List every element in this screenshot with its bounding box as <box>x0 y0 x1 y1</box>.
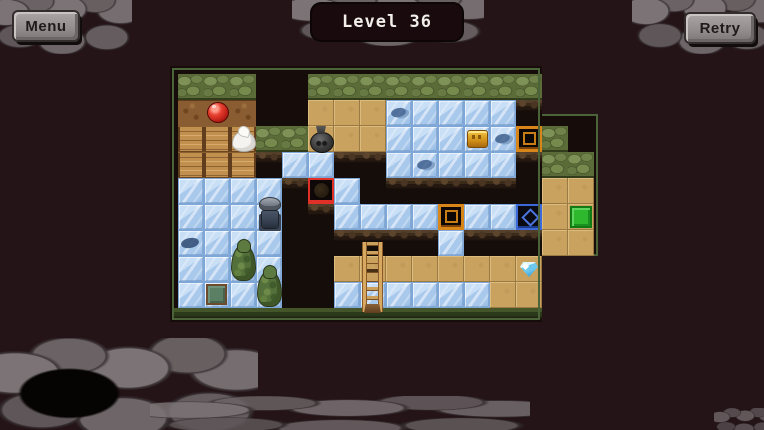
tile-pit <box>282 204 308 230</box>
tile-wood-planks <box>178 152 204 178</box>
tile-grass-wall <box>282 126 308 152</box>
tile-sand-floor <box>568 178 594 204</box>
tile-ice <box>464 100 490 126</box>
tile-ice <box>178 282 204 308</box>
tile-grass-wall <box>360 74 386 100</box>
tile-ice <box>386 204 412 230</box>
tile-pit <box>360 152 386 178</box>
tile-dirt <box>230 100 256 126</box>
tile-pit <box>282 230 308 256</box>
tile-ice <box>178 204 204 230</box>
tile-pit <box>308 282 334 308</box>
tile-ice <box>178 256 204 282</box>
tile-ice <box>412 100 438 126</box>
tile-ice <box>230 178 256 204</box>
tile-ice <box>308 152 334 178</box>
tile-grass-wall <box>542 126 568 152</box>
cave-rocks-bottom-right <box>714 408 764 430</box>
ladder <box>360 230 386 256</box>
tile-pit <box>334 230 360 256</box>
tile-wood-planks <box>230 152 256 178</box>
tile-ice <box>334 178 360 204</box>
tile-ice <box>438 230 464 256</box>
tile-ice <box>412 204 438 230</box>
tile-ice <box>412 126 438 152</box>
tile-ice <box>386 152 412 178</box>
tile-pit <box>282 178 308 204</box>
tile-sand-floor <box>334 256 360 282</box>
tree <box>256 282 282 308</box>
tile-pit <box>308 256 334 282</box>
tile-ice <box>386 282 412 308</box>
tile-grass-wall <box>334 74 360 100</box>
exit-pad <box>568 204 594 230</box>
tile-sand-floor <box>490 256 516 282</box>
tile-grass-wall <box>516 74 542 100</box>
tile-pit <box>334 152 360 178</box>
tile-grass-wall <box>412 74 438 100</box>
tile-ice <box>464 282 490 308</box>
tile-grass-wall <box>256 126 282 152</box>
tile-ice <box>230 282 256 308</box>
tile-pit <box>386 230 412 256</box>
tile-sand-floor <box>308 100 334 126</box>
bomb <box>308 126 334 152</box>
tile-sand-floor <box>360 100 386 126</box>
tile-grass-wall <box>490 74 516 100</box>
menu-button[interactable]: Menu <box>12 10 80 42</box>
tile-wood-planks <box>204 126 230 152</box>
gold-crate <box>464 126 490 152</box>
tile-ice <box>412 282 438 308</box>
tile-grass-wall <box>386 74 412 100</box>
tile-pit <box>308 204 334 230</box>
tile-sand-floor <box>412 256 438 282</box>
tile-grass-wall <box>542 152 568 178</box>
tile-pit <box>256 152 282 178</box>
tile-grass-wall <box>230 74 256 100</box>
ice-spot <box>412 152 438 178</box>
tile-sand-floor <box>464 256 490 282</box>
tree <box>230 256 256 282</box>
tile-ice <box>256 230 282 256</box>
tile-sand-floor <box>568 230 594 256</box>
tile-pit <box>412 230 438 256</box>
ice-spot <box>490 126 516 152</box>
tile-pit <box>516 178 542 204</box>
tile-sand-floor <box>542 230 568 256</box>
tile-ice <box>490 100 516 126</box>
tile-sand-floor <box>438 256 464 282</box>
tile-ice <box>204 204 230 230</box>
tile-ice <box>230 204 256 230</box>
level-bottom-edge <box>174 308 542 320</box>
tile-sand-floor <box>490 282 516 308</box>
tile-pit <box>360 178 386 204</box>
tile-pit <box>412 178 438 204</box>
tile-pit <box>308 230 334 256</box>
tile-grass-wall <box>204 74 230 100</box>
tile-pit <box>282 256 308 282</box>
tile-ice <box>282 152 308 178</box>
tile-sand-floor <box>334 126 360 152</box>
tile-grass-wall <box>178 74 204 100</box>
level-title: Level 36 <box>312 4 462 40</box>
blue-gem <box>516 256 542 282</box>
tile-grass-wall <box>438 74 464 100</box>
tile-grass-wall <box>568 152 594 178</box>
retry-button[interactable]: Retry <box>684 12 756 44</box>
tile-pit <box>516 230 542 256</box>
green-plate <box>204 282 230 308</box>
tile-dirt <box>178 100 204 126</box>
game-screen: Menu Level 36 Retry <box>0 0 764 430</box>
tile-ice <box>490 204 516 230</box>
ice-spot <box>386 100 412 126</box>
tile-gem-target <box>516 204 542 230</box>
tile-pit <box>516 152 542 178</box>
level-board[interactable] <box>170 66 542 322</box>
tile-ice <box>464 204 490 230</box>
tile-crate-target <box>438 204 464 230</box>
tile-ice <box>204 230 230 256</box>
tile-pit <box>438 178 464 204</box>
tile-sand-floor <box>334 100 360 126</box>
tile-ice <box>178 178 204 204</box>
tile-sand-floor <box>542 178 568 204</box>
tile-ice <box>438 100 464 126</box>
tile-pit <box>282 282 308 308</box>
tile-ice <box>438 126 464 152</box>
tile-pit <box>490 230 516 256</box>
tile-sand-floor <box>516 282 542 308</box>
fish-shadow <box>178 230 204 256</box>
tile-ice <box>204 178 230 204</box>
tile-wood-planks <box>204 152 230 178</box>
tile-red-ball-target <box>308 178 334 204</box>
tile-pit <box>386 178 412 204</box>
tile-pit <box>464 230 490 256</box>
tile-ice <box>334 282 360 308</box>
cave-hole <box>6 358 138 426</box>
tile-ice <box>490 152 516 178</box>
tile-ice <box>204 256 230 282</box>
tile-pit <box>464 178 490 204</box>
cave-rocks-bottom <box>150 396 530 430</box>
player[interactable] <box>256 204 282 230</box>
tile-ice <box>334 204 360 230</box>
tile-sand-floor <box>360 126 386 152</box>
tile-ice <box>464 152 490 178</box>
tile-wood-planks <box>178 126 204 152</box>
tile-ice <box>360 204 386 230</box>
red-ball <box>204 100 230 126</box>
tile-ice <box>438 152 464 178</box>
white-blob <box>230 126 256 152</box>
tile-grass-wall <box>464 74 490 100</box>
tile-crate-target <box>516 126 542 152</box>
tile-ice <box>386 126 412 152</box>
tile-sand-floor <box>386 256 412 282</box>
tile-sand-floor <box>542 204 568 230</box>
tile-ice <box>438 282 464 308</box>
tile-pit <box>490 178 516 204</box>
tile-pit <box>516 100 542 126</box>
tile-grass-wall <box>308 74 334 100</box>
